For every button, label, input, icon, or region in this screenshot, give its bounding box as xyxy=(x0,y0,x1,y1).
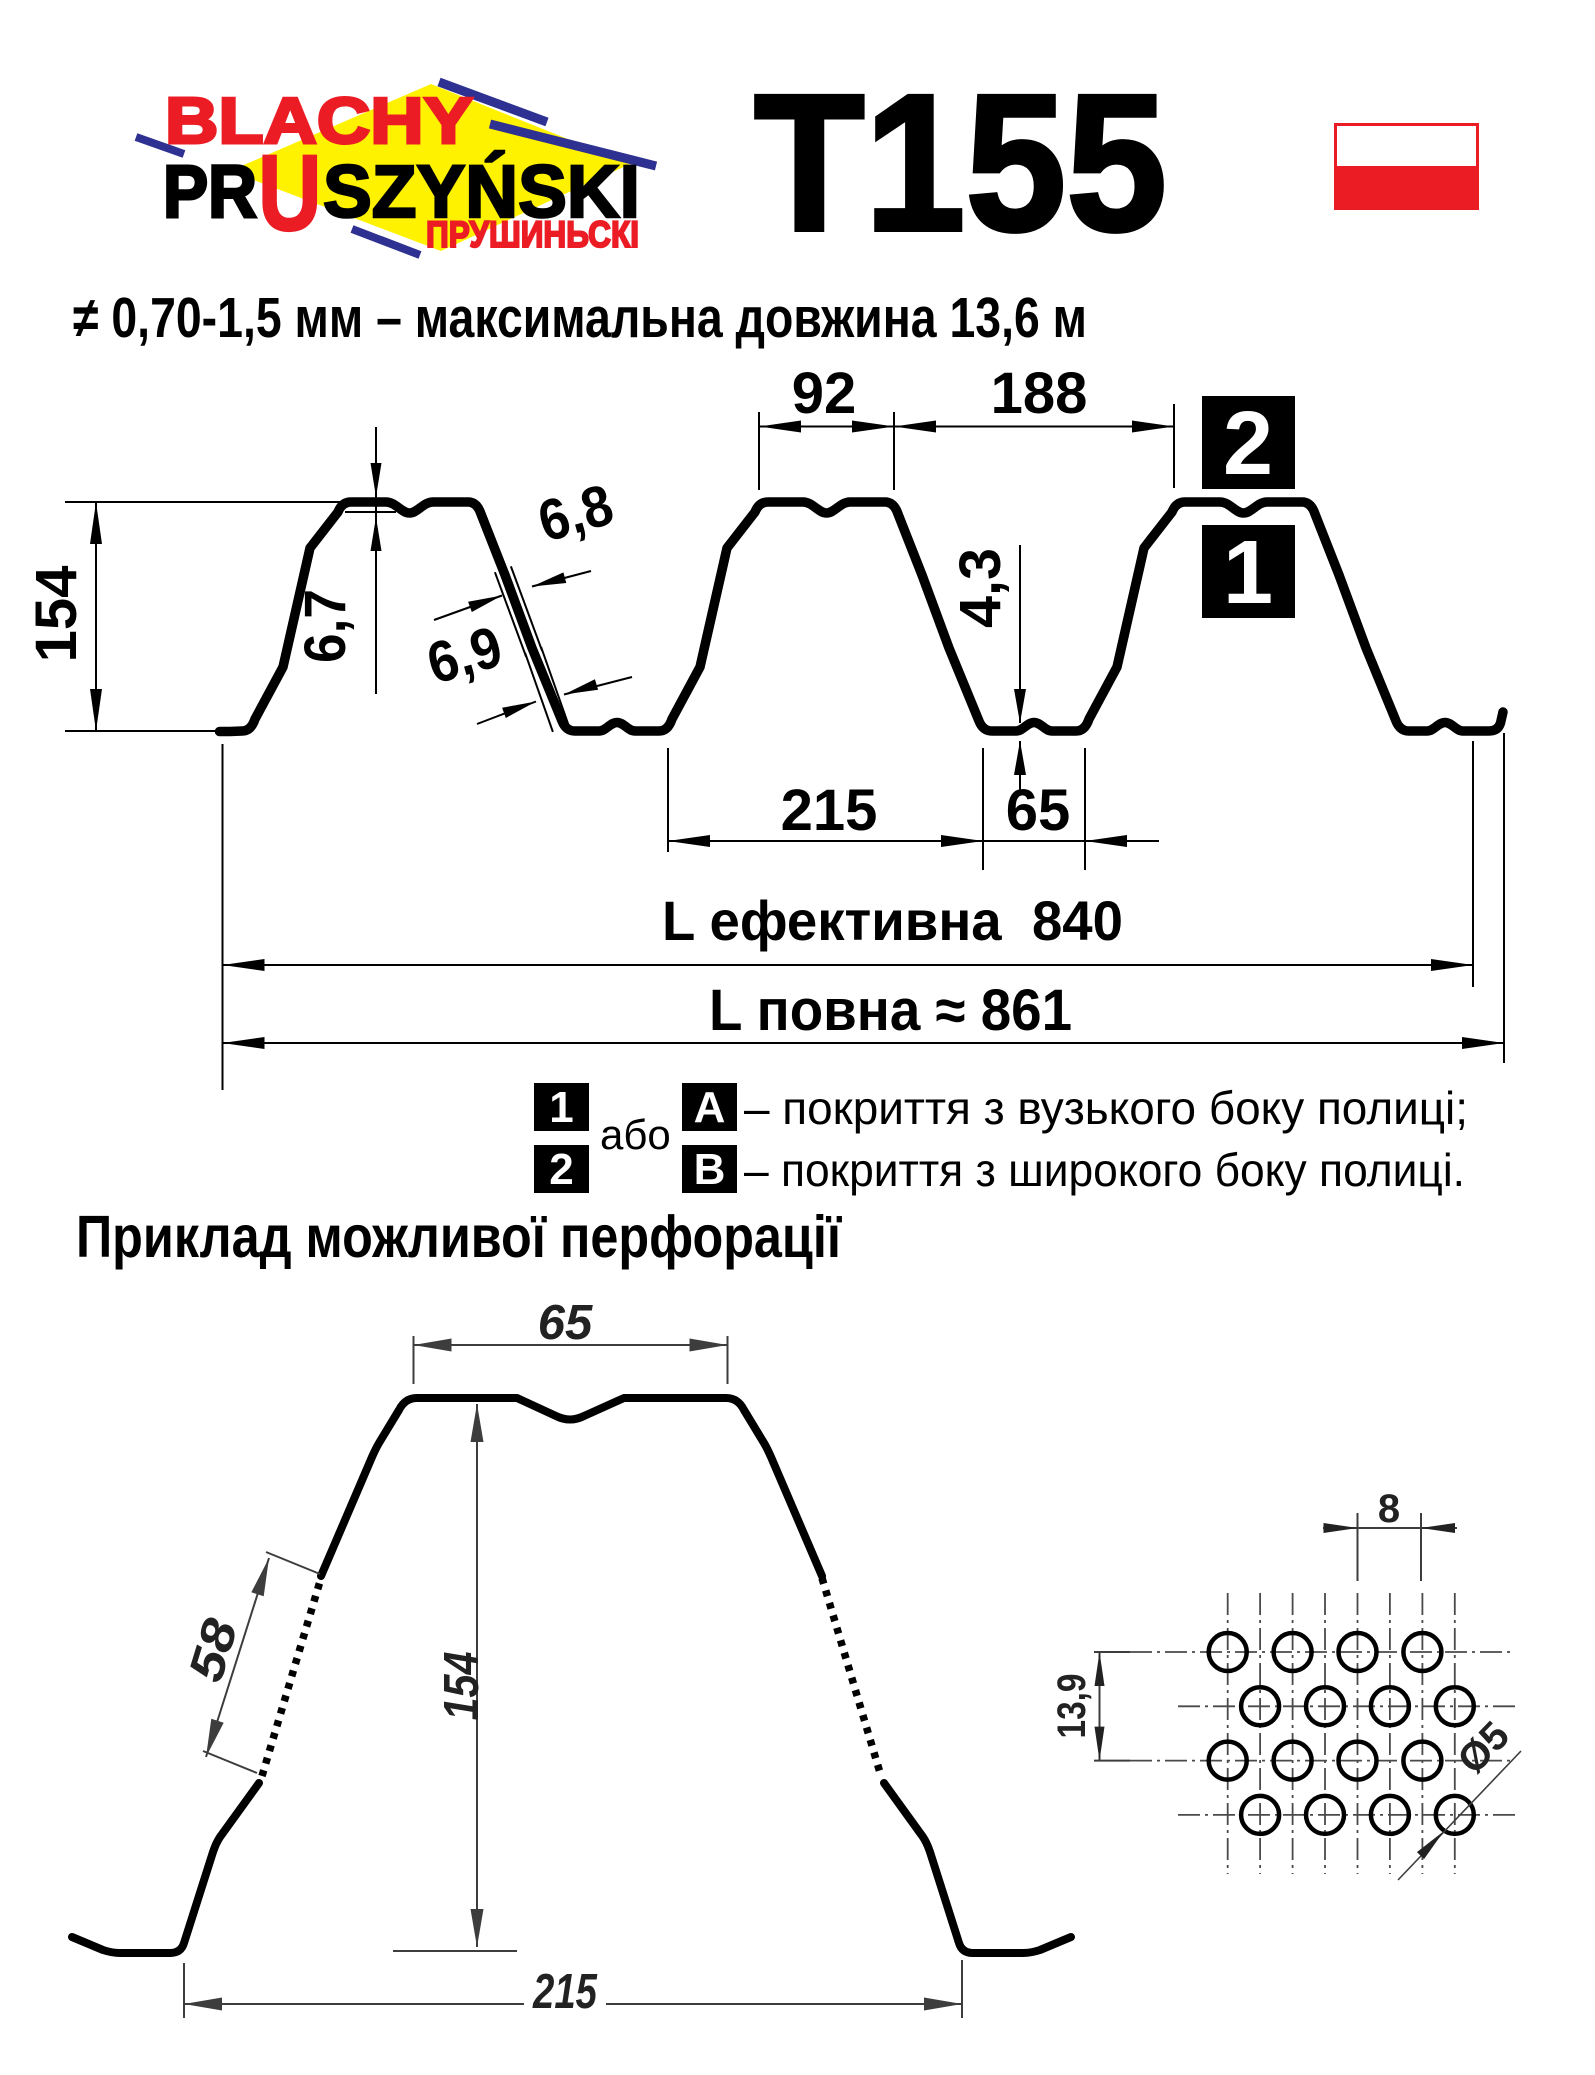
svg-text:L повна ≈ 861: L повна ≈ 861 xyxy=(709,978,1072,1043)
svg-text:– покриття з вузького боку пол: – покриття з вузького боку полиці; xyxy=(744,1082,1468,1134)
svg-text:65: 65 xyxy=(1006,778,1071,843)
svg-text:188: 188 xyxy=(991,361,1088,426)
svg-text:або: або xyxy=(600,1111,671,1158)
svg-text:A: A xyxy=(694,1083,726,1132)
svg-text:215: 215 xyxy=(781,778,878,843)
svg-text:92: 92 xyxy=(792,361,857,426)
svg-text:8: 8 xyxy=(1378,1487,1400,1531)
svg-text:PR: PR xyxy=(163,150,257,233)
svg-text:4,3: 4,3 xyxy=(948,548,1013,628)
svg-text:1: 1 xyxy=(549,1083,573,1132)
svg-text:65: 65 xyxy=(538,1296,593,1350)
svg-text:U: U xyxy=(258,133,322,253)
svg-text:13,9: 13,9 xyxy=(1050,1674,1094,1739)
svg-text:≠ 0,70-1,5 мм – максимальна до: ≠ 0,70-1,5 мм – максимальна довжина 13,6… xyxy=(73,286,1087,350)
svg-text:215: 215 xyxy=(532,1965,597,2019)
svg-text:L ефективна 840: L ефективна 840 xyxy=(662,889,1123,952)
svg-text:2: 2 xyxy=(1223,394,1273,494)
svg-text:T155: T155 xyxy=(754,54,1167,272)
svg-text:B: B xyxy=(694,1145,726,1194)
svg-text:154: 154 xyxy=(24,566,89,663)
svg-text:154: 154 xyxy=(435,1652,489,1721)
svg-text:Приклад можливої перфорації: Приклад можливої перфорації xyxy=(76,1204,842,1270)
svg-text:ПРУШИНЬСКІ: ПРУШИНЬСКІ xyxy=(426,214,639,255)
svg-text:– покриття з широкого боку пол: – покриття з широкого боку полиці. xyxy=(744,1144,1465,1196)
svg-text:2: 2 xyxy=(549,1145,573,1194)
svg-text:1: 1 xyxy=(1223,523,1273,623)
svg-text:6,7: 6,7 xyxy=(293,589,358,663)
